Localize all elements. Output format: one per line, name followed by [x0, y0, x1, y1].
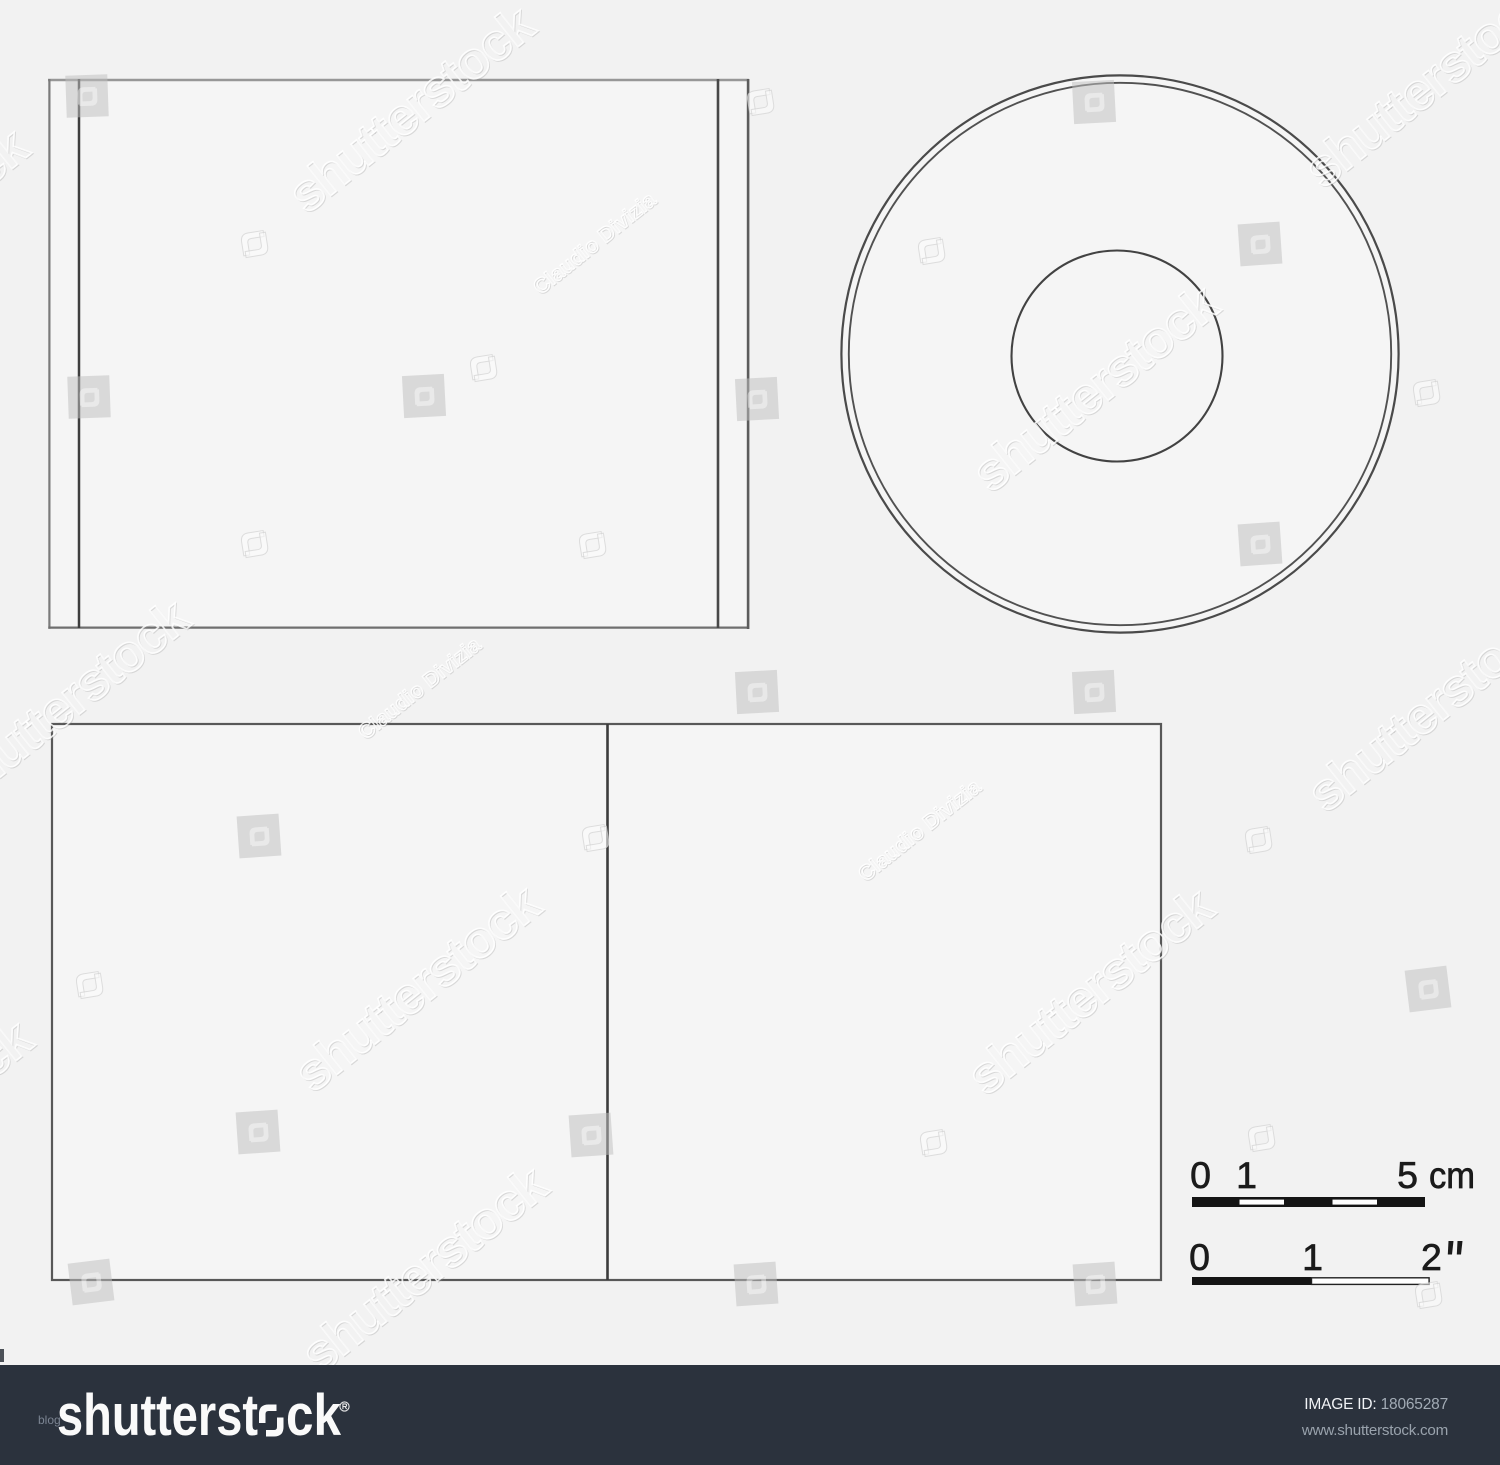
svg-text:ck: ck	[286, 1383, 342, 1448]
svg-text:1: 1	[1302, 1236, 1323, 1278]
svg-text:0: 0	[1190, 1154, 1211, 1196]
svg-text:2: 2	[1421, 1236, 1442, 1278]
svg-text:shutterst: shutterst	[57, 1383, 258, 1448]
svg-text:cm: cm	[1429, 1154, 1475, 1196]
svg-text:5: 5	[1397, 1154, 1418, 1196]
svg-text:0: 0	[1189, 1236, 1210, 1278]
